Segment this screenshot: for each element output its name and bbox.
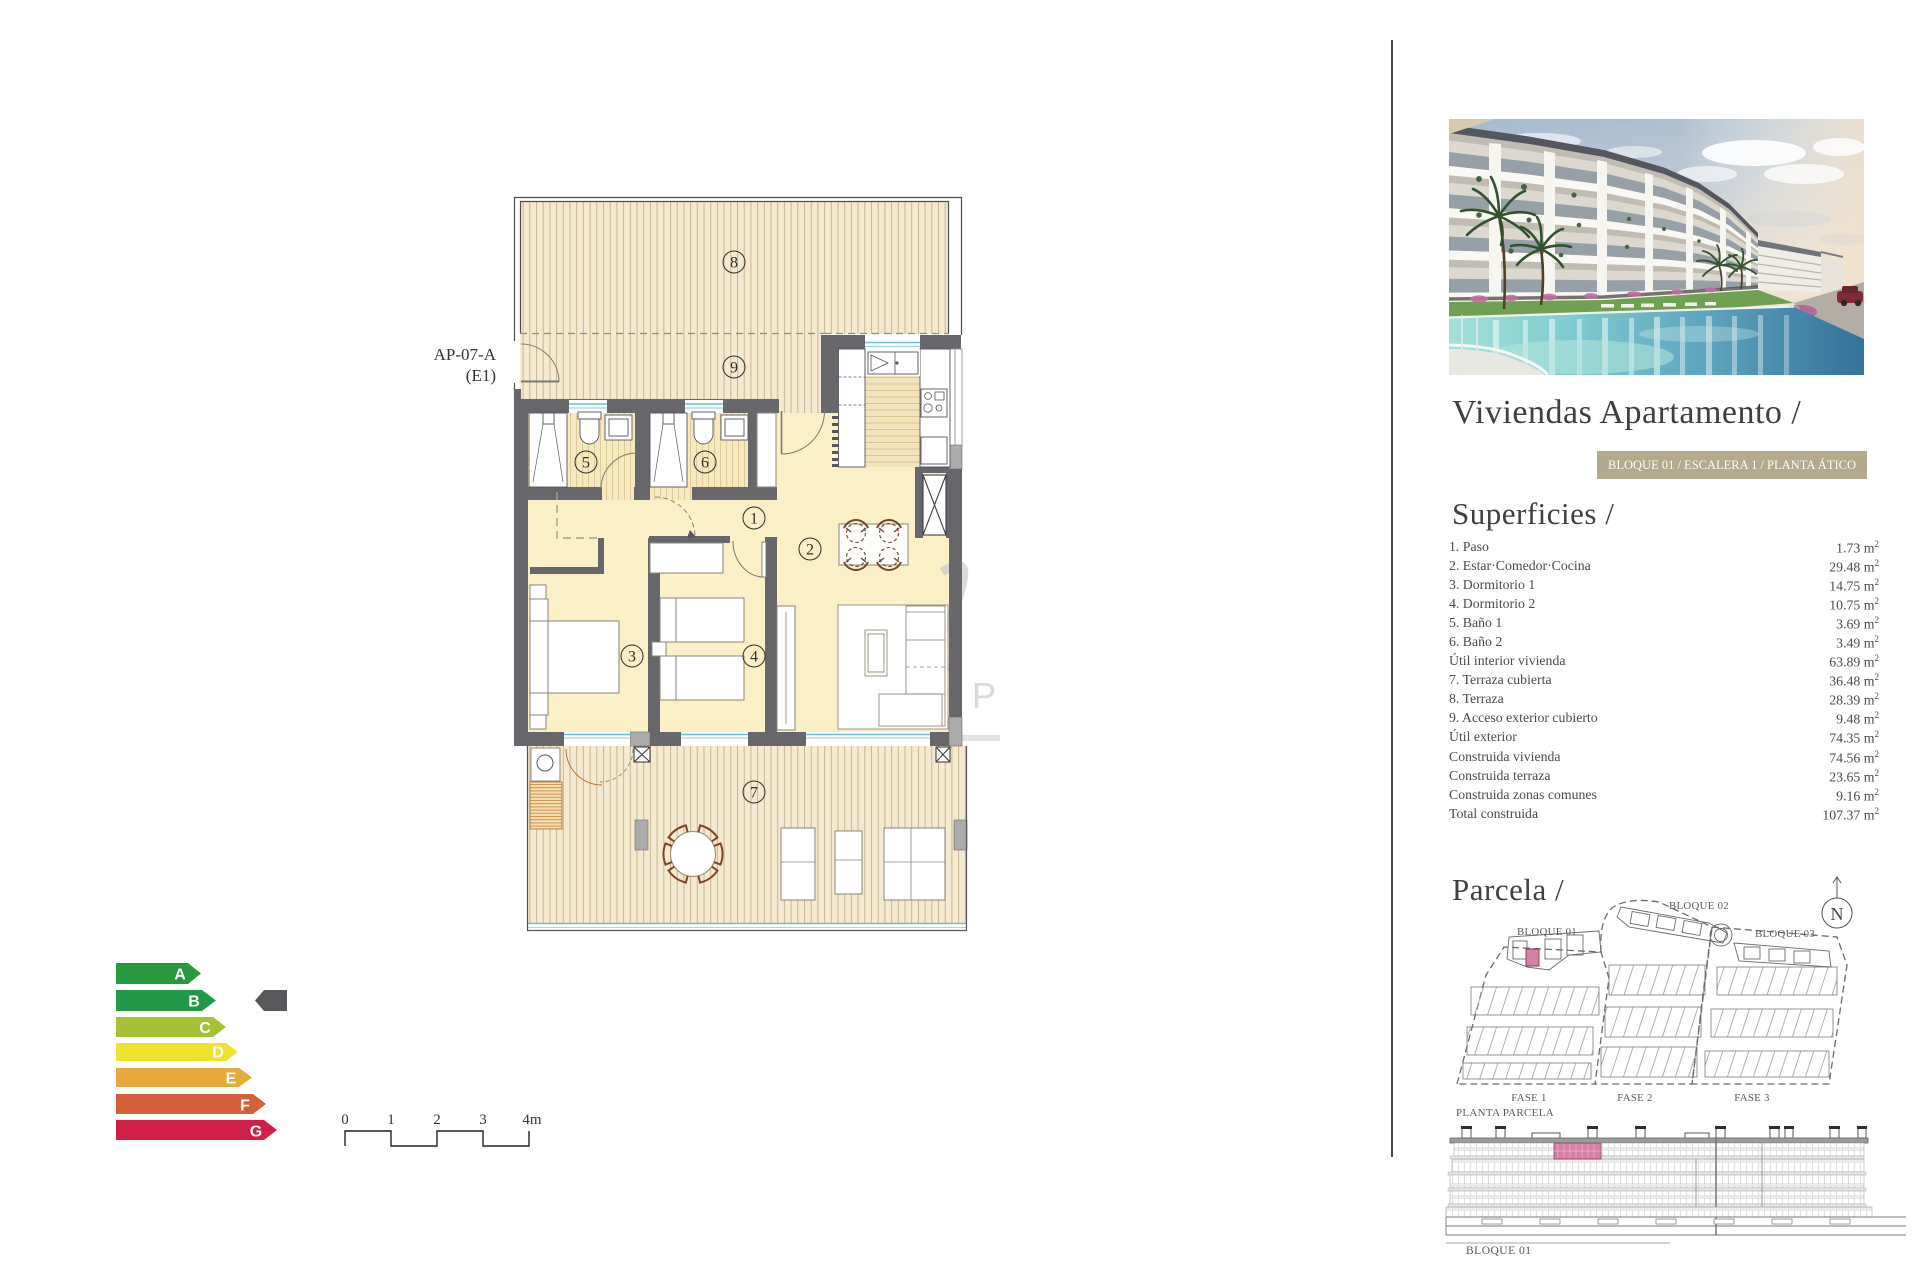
svg-text:0: 0 (341, 1112, 349, 1128)
svg-text:G: G (250, 1124, 262, 1141)
svg-text:D: D (212, 1045, 224, 1062)
svg-text:3: 3 (479, 1112, 487, 1128)
svg-text:A: A (174, 967, 186, 984)
svg-text:AP-07-A: AP-07-A (434, 345, 497, 364)
svg-text:F: F (240, 1098, 250, 1115)
svg-text:8: 8 (730, 255, 738, 272)
svg-text:9: 9 (730, 360, 738, 377)
svg-text:1: 1 (750, 511, 758, 528)
svg-text:BLOQUE 02: BLOQUE 02 (1669, 900, 1729, 912)
svg-text:FASE 2: FASE 2 (1617, 1092, 1653, 1104)
svg-text:(E1): (E1) (466, 366, 496, 385)
svg-text:FASE 3: FASE 3 (1734, 1092, 1770, 1104)
svg-text:2: 2 (433, 1112, 441, 1128)
svg-text:2: 2 (806, 542, 814, 559)
svg-text:BLOQUE 03: BLOQUE 03 (1755, 928, 1815, 940)
svg-text:4: 4 (750, 649, 758, 666)
svg-text:FASE 1: FASE 1 (1511, 1092, 1547, 1104)
svg-text:4m: 4m (522, 1112, 542, 1128)
svg-text:5: 5 (582, 455, 590, 472)
svg-text:E: E (226, 1071, 237, 1088)
svg-text:B: B (188, 994, 200, 1011)
svg-text:1: 1 (387, 1112, 395, 1128)
svg-text:6: 6 (701, 455, 709, 472)
svg-text:C: C (199, 1020, 211, 1037)
svg-text:N: N (1831, 904, 1844, 924)
svg-text:7: 7 (750, 785, 758, 802)
svg-text:PLANTA PARCELA: PLANTA PARCELA (1456, 1107, 1554, 1119)
svg-text:3: 3 (628, 649, 636, 666)
svg-text:BLOQUE 01: BLOQUE 01 (1517, 926, 1577, 938)
